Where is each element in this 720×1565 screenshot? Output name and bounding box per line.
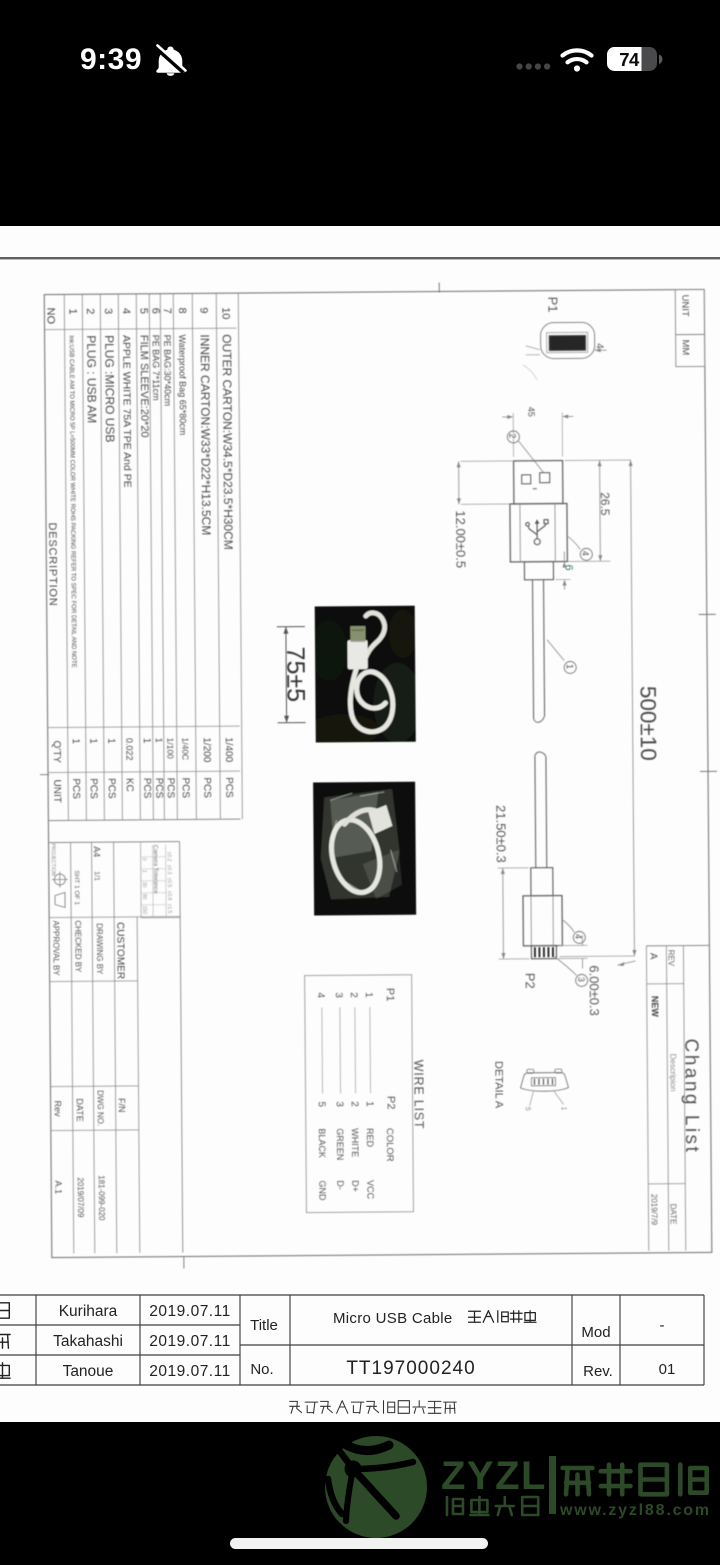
svg-text:Chang List: Chang List bbox=[680, 1038, 702, 1154]
svg-text:2019.07.11: 2019.07.11 bbox=[149, 1333, 230, 1350]
svg-text:2: 2 bbox=[507, 433, 517, 438]
svg-text:5: 5 bbox=[316, 1101, 327, 1107]
svg-text:Takahashi: Takahashi bbox=[53, 1333, 123, 1350]
svg-text:REV: REV bbox=[666, 950, 675, 967]
svg-text:75±5: 75±5 bbox=[281, 647, 309, 703]
svg-text:181-099-020: 181-099-020 bbox=[97, 1175, 106, 1221]
svg-text:01: 01 bbox=[659, 1361, 676, 1378]
svg-text:45: 45 bbox=[526, 407, 536, 417]
svg-text:3: 3 bbox=[576, 977, 586, 982]
svg-text:2: 2 bbox=[84, 308, 96, 314]
svg-text:3: 3 bbox=[334, 1101, 345, 1107]
svg-text:PCS: PCS bbox=[223, 777, 234, 798]
svg-text:6: 6 bbox=[149, 308, 161, 314]
svg-text:PROJECTION: PROJECTION bbox=[50, 844, 56, 877]
svg-text:Micro USB Cable: Micro USB Cable bbox=[333, 1310, 453, 1327]
svg-text:P2: P2 bbox=[523, 973, 538, 989]
svg-text:1: 1 bbox=[141, 870, 147, 873]
svg-text:TT197000240: TT197000240 bbox=[346, 1358, 475, 1379]
svg-text:5: 5 bbox=[524, 1107, 531, 1111]
svg-text:2: 2 bbox=[348, 992, 359, 998]
svg-text:1: 1 bbox=[70, 738, 81, 744]
svg-text:ZYZL: ZYZL bbox=[441, 1454, 547, 1498]
svg-text:PE BAG 7*11cm: PE BAG 7*11cm bbox=[151, 335, 162, 401]
svg-text:150: 150 bbox=[141, 906, 147, 915]
svg-text:APPLE WHITE 75A TPE And PE: APPLE WHITE 75A TPE And PE bbox=[120, 335, 133, 488]
svg-text:A4: A4 bbox=[92, 846, 102, 857]
svg-text:1: 1 bbox=[66, 308, 78, 314]
svg-text:10: 10 bbox=[219, 307, 231, 319]
svg-text:4: 4 bbox=[315, 992, 326, 998]
svg-text:1: 1 bbox=[87, 738, 98, 744]
svg-text:3: 3 bbox=[102, 308, 114, 314]
svg-text:Q'TY: Q'TY bbox=[51, 740, 62, 763]
svg-text:74: 74 bbox=[619, 49, 640, 70]
svg-text:MM: MM bbox=[680, 340, 691, 356]
svg-text:8: 8 bbox=[176, 307, 188, 313]
svg-text:F/N: F/N bbox=[117, 1098, 127, 1113]
svg-text:1: 1 bbox=[565, 664, 575, 669]
svg-text:±0.2: ±0.2 bbox=[166, 852, 172, 862]
svg-text:NO: NO bbox=[44, 308, 56, 325]
svg-text:1/40C: 1/40C bbox=[180, 737, 190, 760]
svg-text:1: 1 bbox=[105, 738, 116, 744]
svg-text:26.5: 26.5 bbox=[598, 492, 612, 516]
svg-text:2019.07.11: 2019.07.11 bbox=[149, 1303, 230, 1320]
svg-text:NEW: NEW bbox=[650, 996, 660, 1018]
svg-text:Mod: Mod bbox=[581, 1324, 610, 1341]
svg-text:PCS: PCS bbox=[201, 777, 212, 798]
svg-text:COLOR: COLOR bbox=[384, 1128, 395, 1162]
svg-text:DRAWING BY: DRAWING BY bbox=[95, 923, 104, 975]
svg-text:0.022: 0.022 bbox=[124, 738, 134, 761]
svg-text:2019/07/09: 2019/07/09 bbox=[76, 1177, 85, 1218]
svg-text:PCS: PCS bbox=[70, 778, 81, 799]
svg-text:DATE: DATE bbox=[668, 1204, 677, 1225]
svg-text:INNER CARTON:W33*D22*H13.5CM: INNER CARTON:W33*D22*H13.5CM bbox=[198, 334, 214, 535]
svg-text:PCS: PCS bbox=[88, 778, 99, 799]
svg-text:2019/7/9: 2019/7/9 bbox=[649, 1194, 658, 1226]
svg-text:1: 1 bbox=[154, 738, 164, 743]
svg-text:9: 9 bbox=[197, 307, 209, 313]
svg-text:1/100: 1/100 bbox=[165, 738, 175, 760]
svg-text:SHT 1 OF 1: SHT 1 OF 1 bbox=[73, 870, 80, 905]
svg-text:P2: P2 bbox=[385, 1096, 397, 1110]
svg-text:4: 4 bbox=[594, 343, 605, 349]
svg-text:1: 1 bbox=[364, 1101, 375, 1107]
svg-text:UNIT: UNIT bbox=[51, 779, 62, 802]
svg-text:5: 5 bbox=[137, 308, 149, 314]
svg-text:APPROVAL BY: APPROVAL BY bbox=[51, 921, 60, 977]
svg-text:DESCRIPTION: DESCRIPTION bbox=[46, 523, 59, 607]
svg-text:PCS: PCS bbox=[165, 778, 176, 799]
svg-text:2: 2 bbox=[349, 1101, 360, 1107]
svg-text:4: 4 bbox=[573, 934, 583, 939]
svg-text:Kurihara: Kurihara bbox=[59, 1303, 118, 1320]
svg-text:DETAIL A: DETAIL A bbox=[492, 1061, 504, 1109]
svg-text:1/400: 1/400 bbox=[223, 737, 234, 763]
svg-text:GREEN: GREEN bbox=[335, 1128, 345, 1160]
svg-text:Rev: Rev bbox=[53, 1100, 63, 1117]
svg-text:GND: GND bbox=[317, 1180, 327, 1201]
svg-text:80: 80 bbox=[141, 894, 147, 900]
svg-text:VCC: VCC bbox=[365, 1180, 375, 1200]
svg-text:4: 4 bbox=[120, 308, 132, 314]
svg-text:±0.5: ±0.5 bbox=[166, 878, 172, 888]
svg-text:500±10: 500±10 bbox=[635, 686, 661, 761]
svg-text:-: - bbox=[660, 1317, 665, 1334]
svg-text:9:39: 9:39 bbox=[80, 43, 142, 76]
svg-text:1: 1 bbox=[560, 1107, 567, 1111]
svg-text:PE BAG:30*40cm: PE BAG:30*40cm bbox=[162, 335, 173, 407]
svg-text:PCS: PCS bbox=[141, 778, 152, 799]
svg-text:WIRE LIST: WIRE LIST bbox=[411, 1060, 426, 1130]
svg-text:Waterproof Bag 65*80cm: Waterproof Bag 65*80cm bbox=[177, 334, 188, 435]
svg-text:KC: KC bbox=[124, 778, 135, 792]
svg-text:7: 7 bbox=[161, 308, 173, 314]
svg-text:Rev.: Rev. bbox=[583, 1363, 613, 1380]
svg-text:1/200: 1/200 bbox=[201, 737, 212, 763]
svg-text:CHECKED BY: CHECKED BY bbox=[73, 920, 82, 973]
svg-text:PLUG : USB AM: PLUG : USB AM bbox=[84, 335, 99, 423]
svg-text:±0.3: ±0.3 bbox=[166, 865, 172, 875]
svg-text:30: 30 bbox=[141, 882, 147, 888]
svg-text:DATE: DATE bbox=[75, 1098, 85, 1121]
svg-text:No.: No. bbox=[250, 1361, 273, 1378]
svg-text:Camera Tolerance: Camera Tolerance bbox=[152, 845, 158, 895]
svg-text:P1: P1 bbox=[545, 297, 560, 313]
svg-text:PLUG :MICRO USB: PLUG :MICRO USB bbox=[102, 335, 117, 442]
svg-text:3: 3 bbox=[333, 992, 344, 998]
svg-text:FILM SLEEVE:20*20: FILM SLEEVE:20*20 bbox=[138, 335, 151, 438]
svg-text:PCS: PCS bbox=[153, 778, 164, 799]
svg-text:PCS: PCS bbox=[180, 777, 191, 798]
svg-text:WHITE: WHITE bbox=[350, 1128, 360, 1157]
svg-text:1: 1 bbox=[363, 992, 374, 998]
svg-text:Title: Title bbox=[250, 1317, 278, 1334]
svg-text:2019.07.11: 2019.07.11 bbox=[149, 1363, 230, 1380]
svg-text:12.00±0.5: 12.00±0.5 bbox=[453, 510, 468, 568]
svg-text:0: 0 bbox=[141, 858, 147, 861]
svg-text:OUTER CARTON:W34.5*D23.5*H30CM: OUTER CARTON:W34.5*D23.5*H30CM bbox=[220, 334, 236, 550]
svg-text:6.00±0.3: 6.00±0.3 bbox=[587, 965, 602, 1016]
svg-text:1/1: 1/1 bbox=[93, 871, 100, 881]
svg-text:±1.5: ±1.5 bbox=[166, 904, 172, 914]
svg-text:P1: P1 bbox=[384, 988, 396, 1002]
svg-text:4: 4 bbox=[580, 551, 590, 556]
svg-text:BLACK: BLACK bbox=[317, 1128, 327, 1158]
svg-text:UNIT: UNIT bbox=[679, 295, 690, 317]
svg-text:D+: D+ bbox=[350, 1180, 360, 1192]
svg-text:±0.8: ±0.8 bbox=[166, 891, 172, 901]
svg-text:1: 1 bbox=[141, 738, 152, 744]
svg-text:www.zyzl88.com: www.zyzl88.com bbox=[559, 1502, 711, 1519]
svg-text:Descripion: Descripion bbox=[668, 1054, 677, 1092]
svg-text:21.50±0.3: 21.50±0.3 bbox=[493, 805, 508, 863]
svg-text:6: 6 bbox=[562, 564, 574, 570]
svg-text:CUSTOMER: CUSTOMER bbox=[114, 922, 125, 979]
svg-text:RED: RED bbox=[365, 1128, 375, 1148]
svg-text:D-: D- bbox=[335, 1180, 345, 1190]
svg-text:A: A bbox=[647, 953, 658, 960]
svg-text:PCS: PCS bbox=[106, 778, 117, 799]
svg-text:DWG NO.: DWG NO. bbox=[96, 1090, 105, 1126]
svg-text:Tanoue: Tanoue bbox=[63, 1363, 114, 1380]
svg-text:A.1: A.1 bbox=[53, 1180, 63, 1194]
